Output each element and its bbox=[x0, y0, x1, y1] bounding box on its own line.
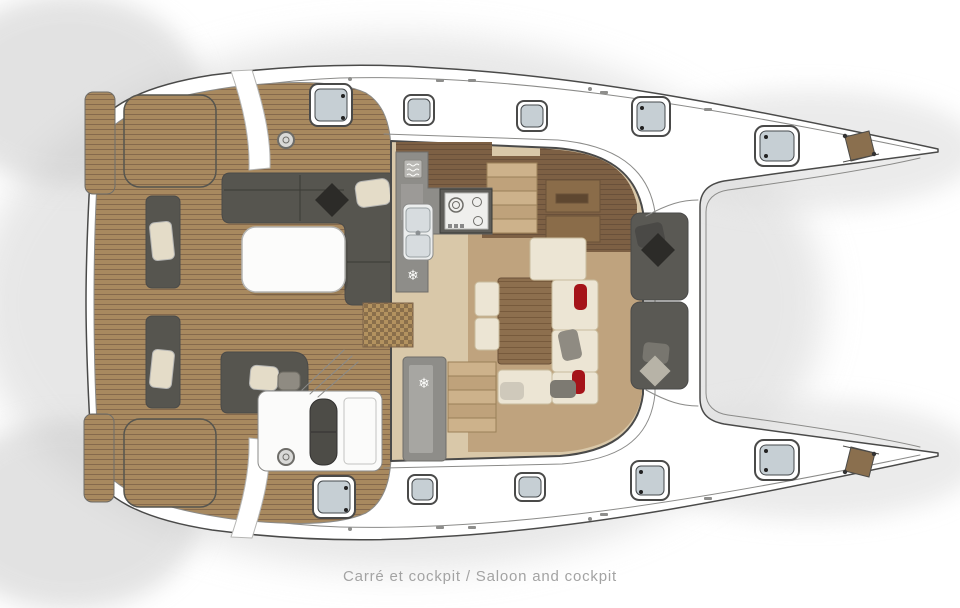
deck-hatch bbox=[404, 95, 434, 125]
oven-icon bbox=[404, 160, 422, 178]
winch-forward bbox=[278, 132, 294, 148]
deck-hatch bbox=[313, 476, 355, 518]
galley-sink bbox=[403, 204, 433, 260]
freezer-snowflake-icon: ❄ bbox=[407, 268, 419, 284]
plan-caption: Carré et cockpit / Saloon and cockpit bbox=[0, 568, 960, 585]
door-threshold-mat bbox=[363, 303, 413, 347]
companionway-steps-starboard bbox=[487, 163, 537, 233]
deck-hatch bbox=[632, 97, 670, 136]
saloon: ❄ ❄ bbox=[384, 134, 655, 468]
fridge-cabinet: ❄ bbox=[403, 357, 446, 461]
saloon-dining-table bbox=[498, 278, 552, 364]
galley-stove bbox=[440, 189, 492, 233]
cockpit-table bbox=[242, 227, 348, 296]
catamaran-floor-plan: ❄ ❄ bbox=[0, 0, 960, 608]
bench-pillow bbox=[278, 372, 300, 390]
deck-hatch bbox=[515, 473, 545, 501]
gray-pillow bbox=[550, 380, 576, 398]
red-pillow bbox=[574, 284, 587, 310]
chart-table bbox=[546, 180, 600, 242]
deck-hatch bbox=[408, 475, 437, 504]
deck-hatch bbox=[631, 461, 669, 500]
bench-pillow bbox=[149, 349, 175, 389]
bow-hatch bbox=[755, 126, 799, 166]
winch-aft bbox=[278, 449, 294, 465]
bow-hatch bbox=[755, 440, 799, 480]
bench-pillow bbox=[149, 221, 175, 261]
deck-hatch bbox=[310, 84, 352, 126]
bench-pillow bbox=[249, 365, 279, 391]
cockpit-pillow-cream bbox=[354, 178, 391, 208]
catamaran-deck-plan-figure: ❄ ❄ bbox=[0, 0, 960, 608]
light-pillow bbox=[500, 382, 524, 400]
deck-hatch bbox=[517, 101, 547, 131]
fridge-snowflake-icon: ❄ bbox=[418, 376, 430, 392]
companionway-steps-port bbox=[448, 362, 496, 432]
